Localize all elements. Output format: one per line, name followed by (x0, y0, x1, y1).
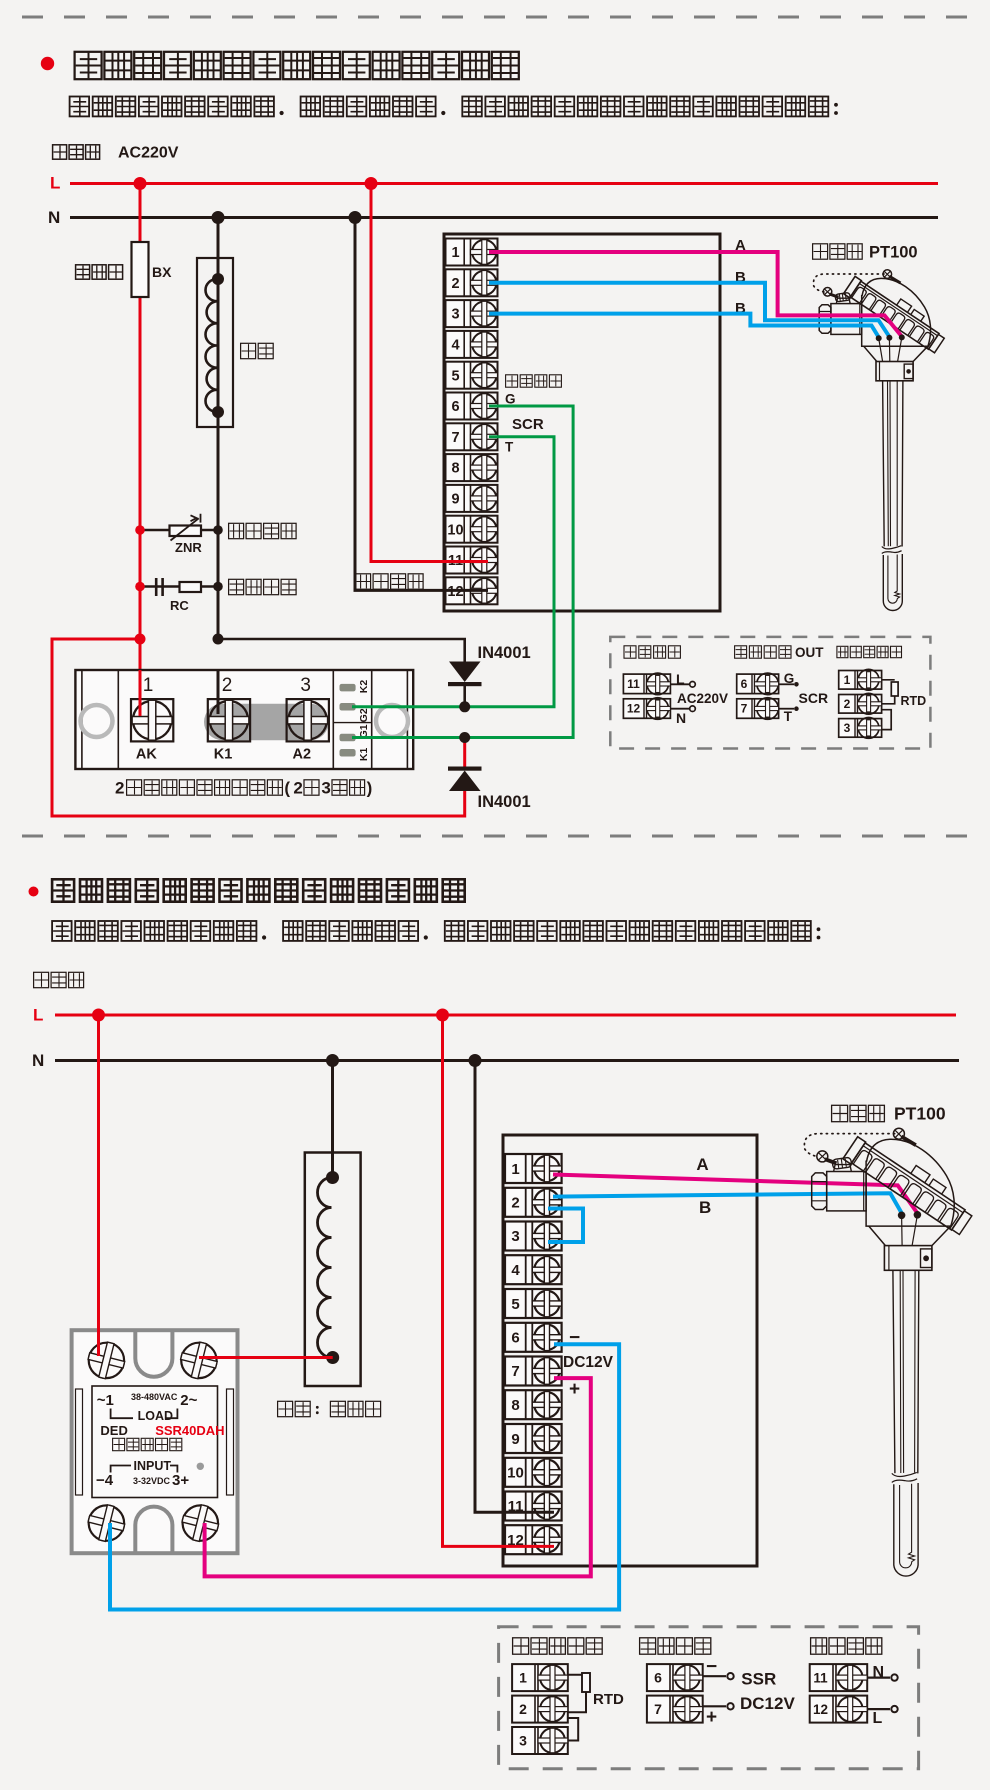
svg-text:3: 3 (300, 675, 311, 696)
svg-text:2: 2 (511, 1195, 519, 1212)
svg-text:2: 2 (293, 779, 302, 798)
svg-text:K1: K1 (358, 748, 370, 762)
svg-text:7: 7 (741, 702, 748, 716)
svg-text:2: 2 (222, 675, 233, 696)
svg-text:K1: K1 (214, 747, 233, 763)
svg-text:L: L (33, 1006, 43, 1025)
svg-text:3: 3 (451, 307, 459, 323)
svg-text:2~: 2~ (180, 1392, 197, 1409)
svg-text:G2: G2 (358, 708, 370, 722)
svg-text:10: 10 (507, 1465, 524, 1482)
svg-text:N: N (32, 1051, 44, 1070)
svg-text:IN4001: IN4001 (478, 793, 531, 811)
svg-text:4: 4 (451, 338, 459, 354)
svg-text:N: N (48, 208, 60, 227)
svg-text:6: 6 (741, 677, 748, 691)
svg-text:SSR: SSR (741, 1670, 776, 1689)
svg-text:3+: 3+ (172, 1472, 189, 1489)
svg-text:38-480VAC: 38-480VAC (131, 1392, 178, 1402)
svg-text:7: 7 (451, 430, 459, 446)
svg-text:): ) (367, 779, 373, 798)
svg-text:IN4001: IN4001 (478, 644, 531, 662)
svg-text:1: 1 (511, 1161, 519, 1178)
svg-text:G: G (505, 392, 516, 407)
svg-text:9: 9 (451, 492, 459, 508)
svg-text:−: − (569, 1328, 580, 1349)
svg-text:−4: −4 (96, 1472, 114, 1489)
svg-text:8: 8 (511, 1397, 519, 1414)
svg-text:RTD: RTD (593, 1691, 624, 1708)
svg-text:2: 2 (519, 1701, 527, 1717)
svg-text:N: N (676, 710, 686, 726)
svg-text:11: 11 (813, 1670, 828, 1685)
svg-text:~1: ~1 (97, 1392, 114, 1409)
svg-text:1: 1 (844, 673, 851, 687)
svg-text:SSR40DAH: SSR40DAH (155, 1423, 224, 1438)
svg-text:4: 4 (511, 1262, 520, 1279)
svg-text:9: 9 (511, 1431, 519, 1448)
svg-text:3: 3 (321, 779, 330, 798)
svg-text:T: T (784, 709, 793, 724)
svg-text:AC220V: AC220V (677, 691, 728, 706)
svg-text:AC220V: AC220V (118, 145, 179, 162)
svg-text:PT100: PT100 (869, 243, 918, 261)
svg-text:DC12V: DC12V (740, 1694, 795, 1713)
svg-text:3: 3 (844, 721, 851, 735)
svg-text:A2: A2 (293, 747, 312, 763)
svg-text:BX: BX (152, 264, 172, 280)
svg-text:SCR: SCR (512, 416, 544, 433)
svg-text:A: A (696, 1155, 708, 1174)
svg-text:INPUT: INPUT (134, 1459, 172, 1473)
svg-text:7: 7 (511, 1363, 519, 1380)
svg-text:3: 3 (519, 1732, 527, 1748)
svg-text:6: 6 (654, 1670, 662, 1686)
svg-text:2: 2 (451, 276, 459, 292)
svg-text:2: 2 (844, 697, 851, 711)
svg-text:AK: AK (136, 747, 157, 763)
svg-text:(: ( (284, 779, 290, 798)
svg-text:+: + (569, 1379, 580, 1400)
svg-text:+: + (706, 1707, 717, 1728)
svg-text:OUT: OUT (795, 645, 824, 660)
svg-text:DC12V: DC12V (563, 1354, 614, 1371)
svg-text:RC: RC (170, 598, 189, 613)
svg-text:11: 11 (627, 677, 640, 691)
svg-text:5: 5 (511, 1296, 519, 1313)
svg-text:1: 1 (451, 245, 459, 261)
svg-text:12: 12 (627, 702, 641, 716)
svg-text:6: 6 (511, 1330, 519, 1347)
svg-text:10: 10 (447, 522, 463, 538)
svg-text:PT100: PT100 (894, 1104, 946, 1124)
svg-text:1: 1 (143, 675, 154, 696)
svg-text:8: 8 (451, 461, 459, 477)
svg-text:LOAD: LOAD (138, 1409, 173, 1423)
svg-text:SCR: SCR (799, 690, 829, 706)
svg-text:6: 6 (451, 399, 459, 415)
svg-text:DED: DED (100, 1423, 127, 1438)
svg-text:5: 5 (451, 368, 459, 384)
svg-text:ZNR: ZNR (175, 540, 202, 555)
svg-text:L: L (873, 1710, 883, 1727)
svg-text:RTD: RTD (901, 694, 927, 708)
svg-text:B: B (699, 1198, 711, 1217)
svg-text:3-32VDC: 3-32VDC (133, 1476, 171, 1486)
svg-text:K2: K2 (358, 680, 370, 694)
svg-text:7: 7 (654, 1701, 662, 1717)
svg-text:3: 3 (511, 1228, 519, 1245)
svg-text:L: L (50, 173, 60, 192)
svg-text:12: 12 (813, 1702, 828, 1717)
svg-text:T: T (505, 440, 514, 455)
svg-text:−: − (706, 1657, 717, 1678)
svg-text:1: 1 (519, 1670, 527, 1686)
svg-text:2: 2 (115, 779, 124, 798)
